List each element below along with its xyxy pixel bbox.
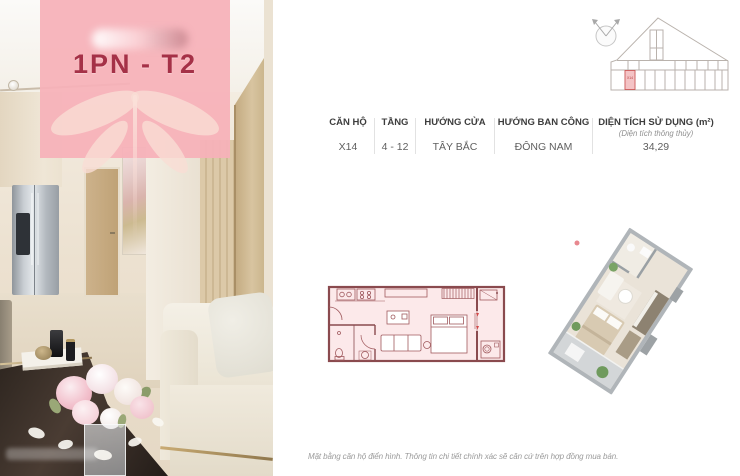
blurred-logo — [92, 29, 188, 49]
spec-col-can-ho: CĂN HỘ X14 — [322, 117, 374, 153]
location-marker-dot — [575, 241, 580, 246]
spec-col-tang: TẦNG 4 - 12 — [375, 117, 415, 153]
photo-watermark — [6, 448, 98, 460]
refrigerator — [12, 185, 59, 295]
compass-icon — [592, 19, 620, 46]
trinket-box — [35, 346, 52, 360]
spec-label: CĂN HỘ — [329, 117, 366, 128]
spec-label: TẦNG — [382, 117, 409, 128]
spec-label: DIỆN TÍCH SỬ DỤNG (m²) — [598, 117, 714, 128]
spec-value: 34,29 — [643, 141, 669, 153]
fridge-door-split — [34, 185, 35, 295]
apartment-photo: 1PN - T2 — [0, 0, 273, 476]
flower-bouquet — [72, 400, 99, 425]
ceiling-light — [8, 80, 19, 91]
apartment-3d-model — [548, 228, 700, 398]
highlighted-unit-cell — [625, 71, 635, 90]
spec-value: ĐÔNG NAM — [515, 141, 573, 153]
spec-value: TÂY BẮC — [433, 141, 478, 153]
spec-label: HƯỚNG BAN CÔNG — [498, 117, 589, 128]
floor-plan-2d — [327, 285, 506, 363]
highlighted-unit-label: X14 — [627, 76, 633, 80]
spec-label: HƯỚNG CỬA — [424, 117, 485, 128]
spec-col-dien-tich: DIỆN TÍCH SỬ DỤNG (m²) (Diện tích thông … — [593, 117, 719, 153]
spec-value: 4 - 12 — [382, 141, 409, 153]
perfume-bottle — [66, 339, 75, 361]
brochure-page: 1PN - T2 — [0, 0, 740, 476]
spec-table: CĂN HỘ X14 TẦNG 4 - 12 HƯỚNG CỬA TÂY BẮC… — [322, 117, 719, 154]
fridge-handle — [37, 193, 39, 265]
disclaimer-text: Mặt bằng căn hộ điển hình. Thông tin chi… — [308, 452, 728, 461]
spec-col-huong-cua: HƯỚNG CỬA TÂY BẮC — [416, 117, 494, 153]
floor-plan-3d — [538, 226, 702, 398]
dragonfly-body-icon — [133, 95, 137, 240]
fridge-dispenser — [16, 213, 30, 255]
bed — [431, 315, 467, 353]
spec-sublabel: (Diện tích thông thủy) — [619, 129, 694, 138]
spec-col-huong-ban-cong: HƯỚNG BAN CÔNG ĐÔNG NAM — [495, 117, 592, 153]
site-key-plan: X14 — [584, 8, 736, 102]
spec-value: X14 — [339, 141, 358, 153]
flower-bouquet — [130, 396, 154, 419]
unit-type-label: 1PN - T2 — [40, 49, 230, 80]
fridge-handle — [31, 193, 33, 265]
sofa-cushion — [207, 291, 273, 379]
sofa-seat — [170, 385, 273, 476]
door-handle — [110, 232, 115, 234]
